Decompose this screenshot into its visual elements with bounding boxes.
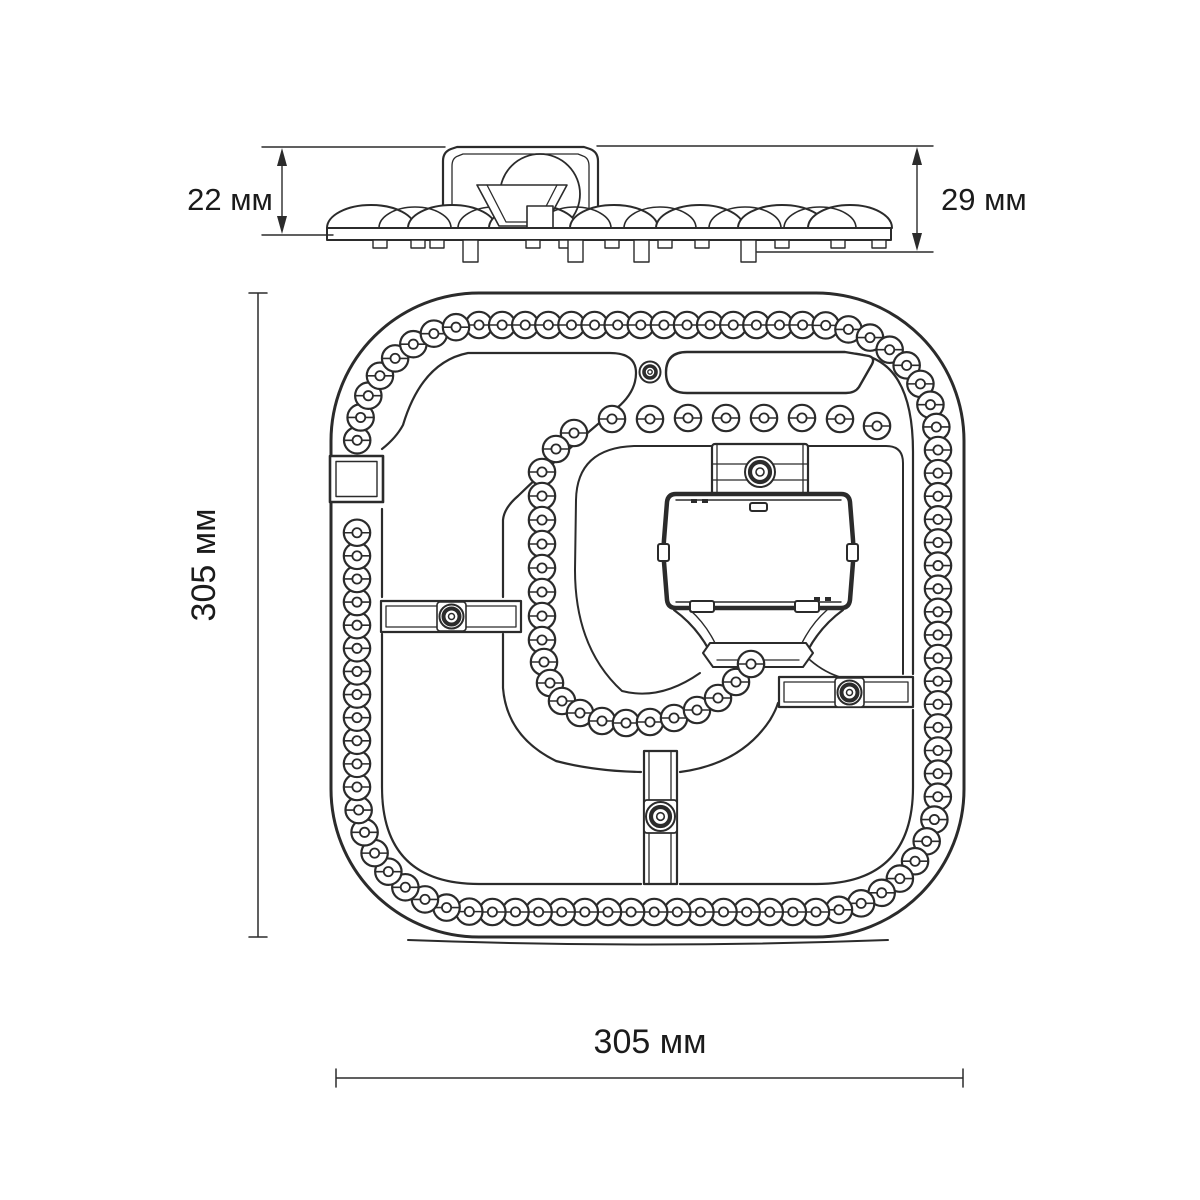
led-lens xyxy=(637,709,663,735)
driver-bottom-tab-right xyxy=(795,601,819,612)
led-lens xyxy=(344,520,370,546)
crossbar-right xyxy=(779,677,913,707)
technical-drawing-page: 22 мм 29 мм xyxy=(0,0,1200,1200)
led-lens xyxy=(613,710,639,736)
led-lens xyxy=(529,483,555,509)
label-side-305: 305 мм xyxy=(185,509,223,622)
led-lens xyxy=(529,507,555,533)
led-lens xyxy=(864,413,890,439)
lens-domes xyxy=(327,205,892,228)
led-lens xyxy=(713,405,739,431)
led-lens xyxy=(789,405,815,431)
led-lens xyxy=(738,651,764,677)
driver-right-clip xyxy=(847,544,858,561)
edge-notch xyxy=(330,456,383,502)
dimension-plan-height: 305 мм xyxy=(185,293,267,937)
bar-bottom xyxy=(644,751,677,884)
led-lens xyxy=(751,405,777,431)
label-height-29: 29 мм xyxy=(941,182,1027,217)
top-led-row xyxy=(599,405,890,439)
led-lens xyxy=(529,531,555,557)
led-lens xyxy=(589,708,615,734)
dimension-plan-width: 305 мм xyxy=(336,1023,963,1087)
driver-left-clip xyxy=(658,544,669,561)
side-view xyxy=(327,147,892,262)
led-lens xyxy=(529,603,555,629)
screw-small-top xyxy=(640,362,661,383)
top-slot-cutout xyxy=(666,352,873,393)
plan-view xyxy=(330,293,964,945)
led-lens xyxy=(637,406,663,432)
led-lens xyxy=(543,436,569,462)
led-lens xyxy=(599,406,625,432)
led-lens xyxy=(529,579,555,605)
led-lens xyxy=(443,314,469,340)
driver-top-clip xyxy=(750,503,767,511)
led-lens xyxy=(529,459,555,485)
led-lens xyxy=(827,406,853,432)
led-lens xyxy=(675,405,701,431)
label-width-305: 305 мм xyxy=(594,1023,707,1061)
led-lens xyxy=(529,555,555,581)
driver-bottom-tab-left xyxy=(690,601,714,612)
led-module-technical-drawing: 22 мм 29 мм xyxy=(0,0,1200,1200)
crossbar-left xyxy=(381,601,521,632)
mount-feet xyxy=(373,240,886,262)
pcb-board xyxy=(327,228,891,240)
driver-box xyxy=(658,494,858,612)
label-height-22: 22 мм xyxy=(187,182,273,217)
board-bottom-rim xyxy=(408,940,888,945)
